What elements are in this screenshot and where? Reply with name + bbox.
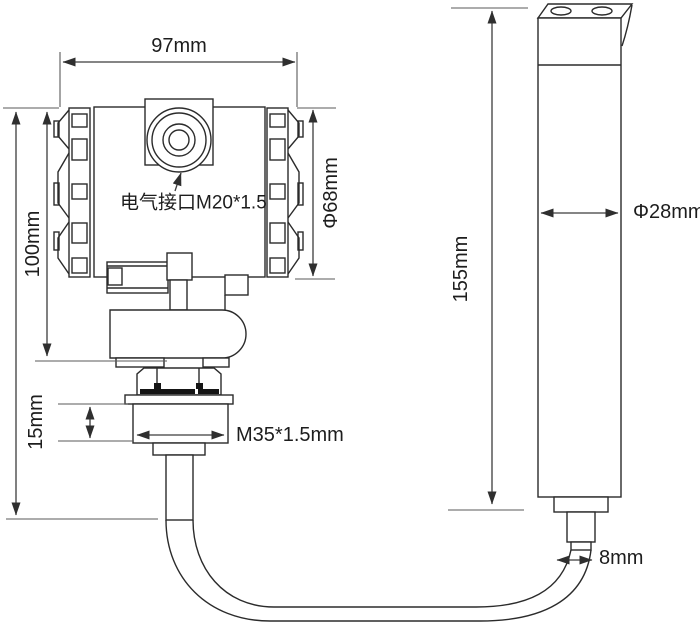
gland-nut: [137, 368, 221, 395]
probe-bottom-step: [554, 497, 608, 512]
dim-100mm-label: 100mm: [22, 211, 44, 278]
seal-nub: [154, 383, 161, 389]
seal-nub: [196, 383, 203, 389]
dim-15mm-label: 15mm: [25, 394, 47, 450]
electrical-entry-boss: [145, 99, 213, 172]
probe-drawing: [538, 4, 632, 550]
bracket-right-block: [225, 275, 248, 295]
dim-15mm: 15mm: [25, 394, 133, 450]
thread-block-m35: [133, 404, 228, 443]
probe-body: [538, 18, 621, 497]
dimension-drawing-canvas: 97mm 100mm Φ68mm 电气接口M20*1.5: [0, 0, 700, 629]
washer: [153, 443, 205, 455]
dim-97mm-label: 97mm: [151, 35, 207, 57]
dim-97mm: 97mm: [60, 35, 297, 107]
dim-m35-label: M35*1.5mm: [236, 424, 344, 446]
coupling-tabs: [116, 358, 229, 367]
dim-155mm: 155mm: [448, 8, 528, 510]
housing-left-fins: [54, 108, 90, 277]
dim-68mm: Φ68mm: [295, 110, 342, 279]
bracket-block: [167, 253, 192, 280]
dim-8mm: 8mm: [557, 547, 643, 569]
seal-bar: [198, 389, 219, 394]
probe-cable-tip: [571, 542, 591, 550]
cable-stem: [166, 455, 193, 520]
electrical-entry-outer-circle: [147, 108, 211, 172]
seal-bar: [140, 389, 195, 394]
dim-155mm-label: 155mm: [450, 236, 472, 303]
dim-8mm-label: 8mm: [599, 547, 643, 569]
bracket-stem: [170, 280, 187, 310]
transmitter-dimension-diagram: 97mm 100mm Φ68mm 电气接口M20*1.5: [0, 0, 700, 629]
dim-68mm-label: Φ68mm: [320, 157, 342, 229]
probe-top-face: [538, 4, 632, 18]
coupling-body: [110, 310, 246, 358]
probe-neck: [567, 512, 595, 542]
housing-right-fins: [267, 108, 303, 277]
electrical-port-label: 电气接口M20*1.5: [120, 192, 267, 214]
mounting-flange: [125, 395, 233, 404]
connection-cable: [166, 520, 591, 621]
dim-28mm-label: Φ28mm: [633, 201, 700, 223]
